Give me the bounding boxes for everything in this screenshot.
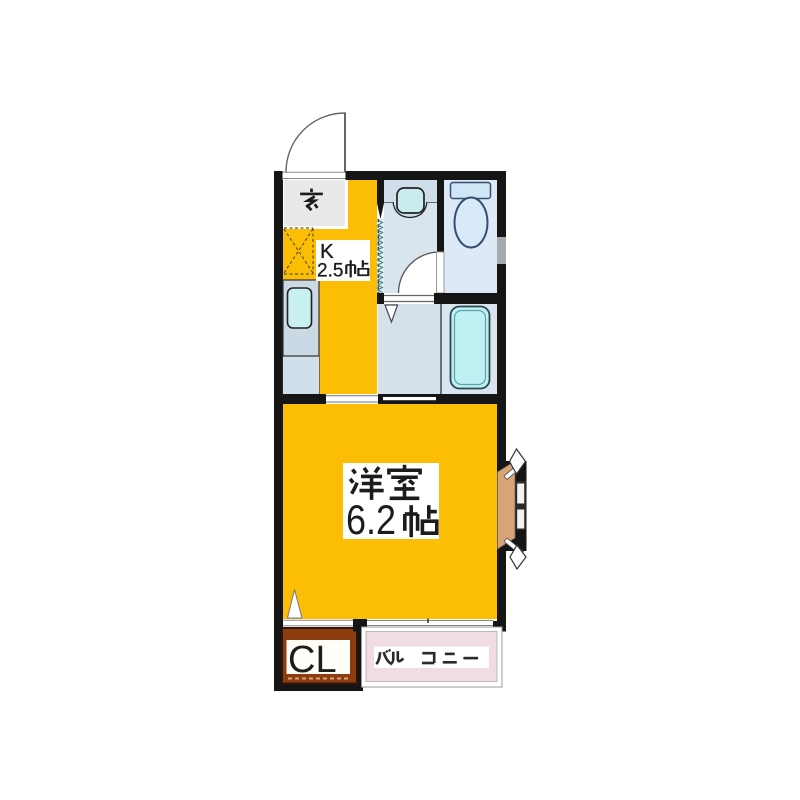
svg-text:CL: CL — [288, 639, 337, 681]
svg-text:2.5: 2.5 — [317, 261, 343, 282]
svg-text:6.2: 6.2 — [346, 496, 396, 543]
